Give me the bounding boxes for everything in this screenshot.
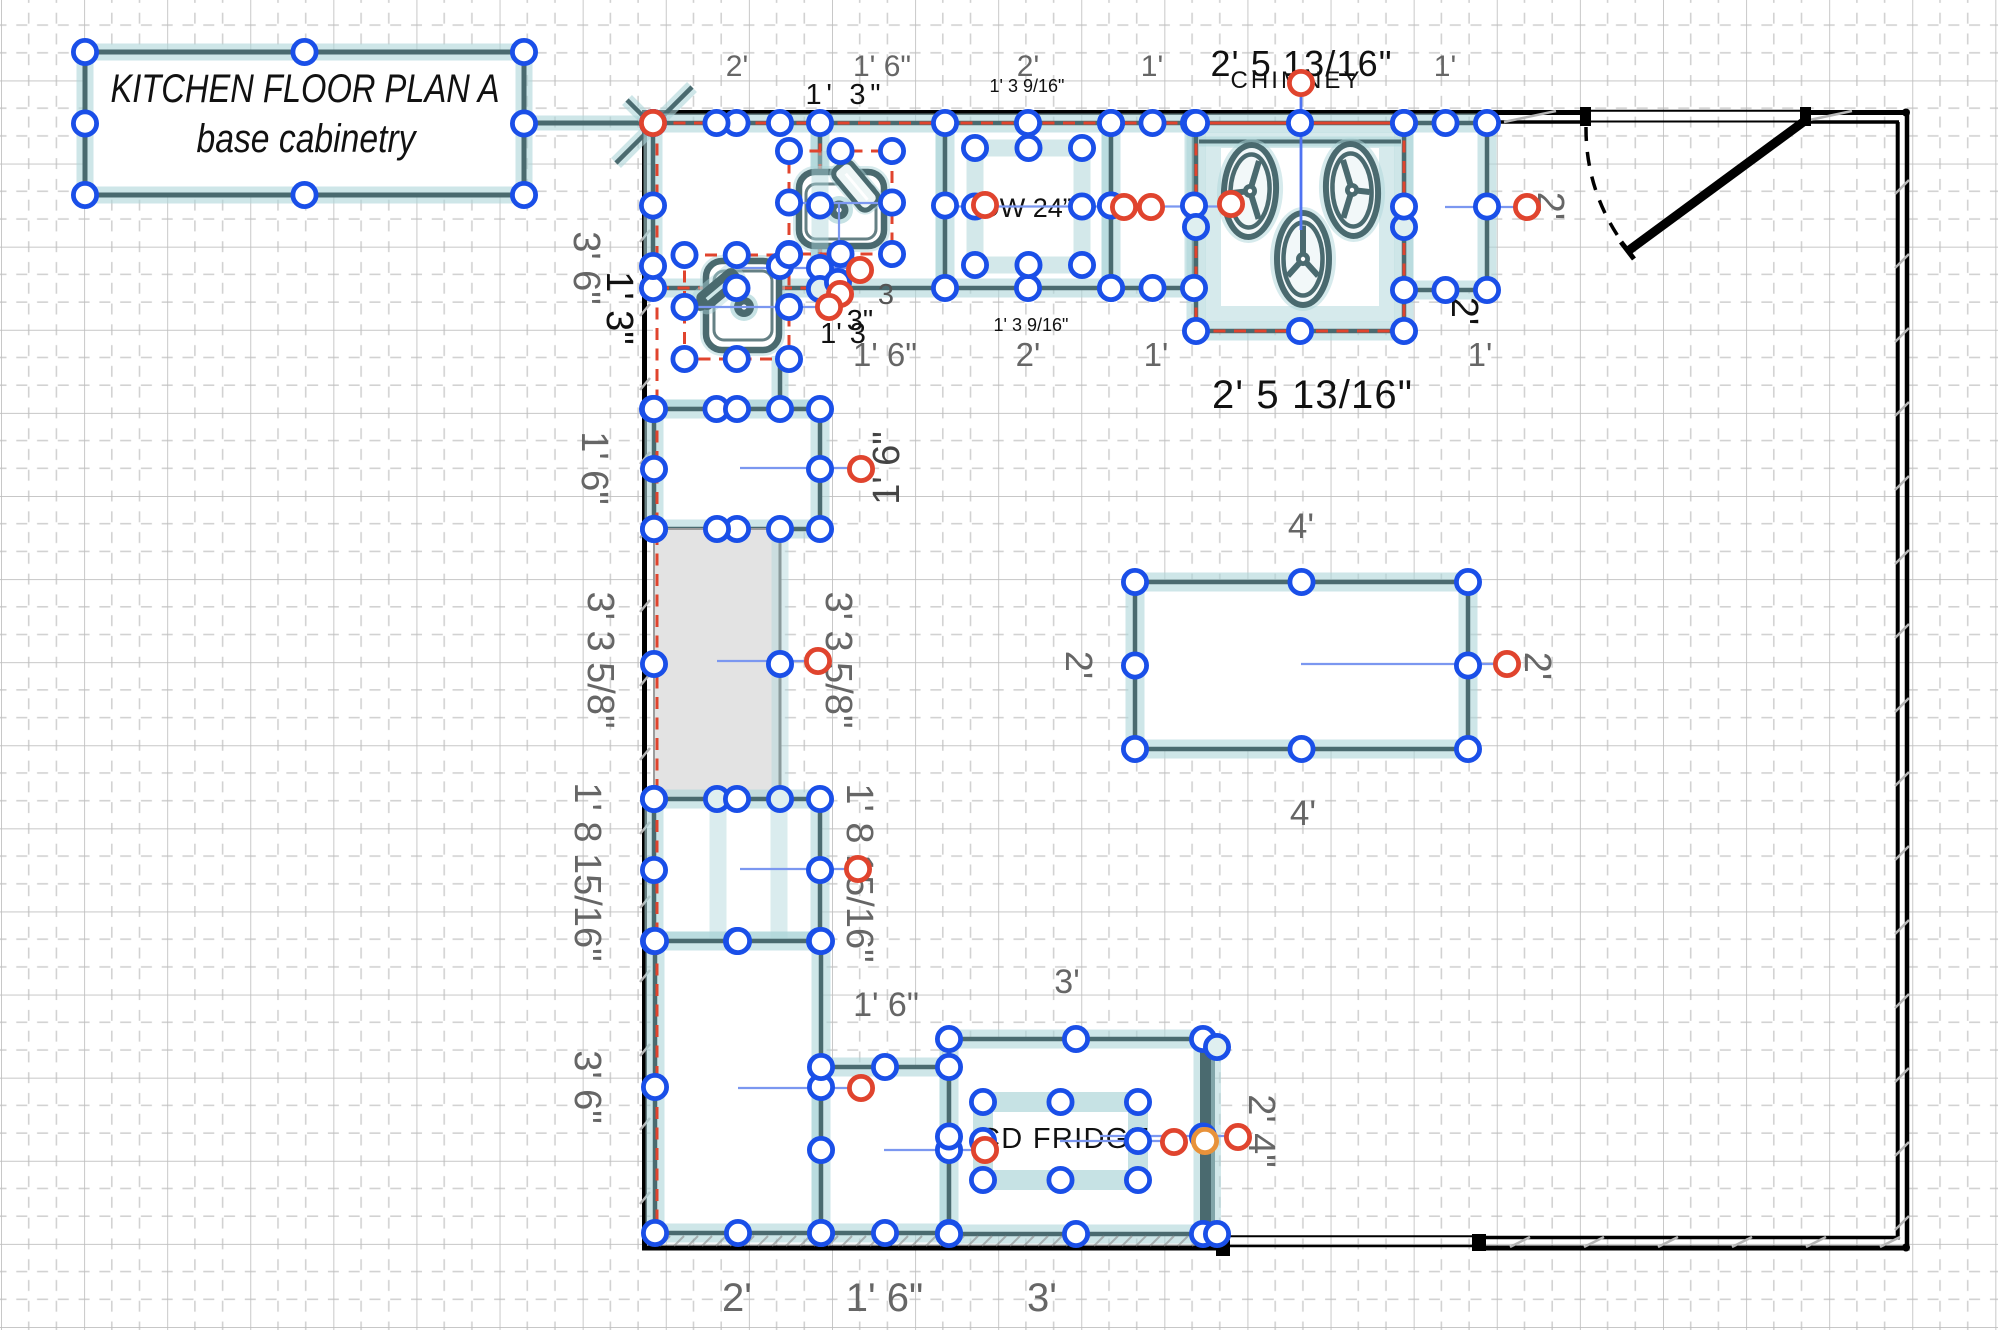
svg-text:1' 6": 1' 6" [853, 986, 919, 1024]
svg-text:1': 1' [1434, 50, 1456, 83]
svg-text:3': 3' [1027, 1276, 1057, 1320]
svg-text:base cabinetry: base cabinetry [197, 117, 419, 161]
svg-text:3': 3' [1054, 963, 1079, 1001]
svg-text:3' 3 5/8": 3' 3 5/8" [579, 592, 621, 729]
svg-text:2': 2' [1016, 336, 1041, 373]
svg-text:1' 6": 1' 6" [846, 1276, 923, 1320]
svg-text:CD FRIDGE: CD FRIDGE [979, 1123, 1149, 1155]
svg-text:1' 3": 1' 3" [806, 79, 881, 111]
svg-text:3: 3 [878, 279, 894, 311]
svg-text:1' 3 9/16": 1' 3 9/16" [990, 76, 1065, 96]
svg-text:2': 2' [726, 50, 748, 83]
svg-text:KITCHEN FLOOR PLAN A: KITCHEN FLOOR PLAN A [111, 67, 500, 111]
svg-text:1' 8 15/16": 1' 8 15/16" [566, 782, 608, 961]
svg-text:1': 1' [1144, 336, 1169, 373]
svg-text:1': 1' [1468, 336, 1493, 373]
svg-text:2' 5 13/16": 2' 5 13/16" [1212, 373, 1412, 417]
svg-text:4': 4' [1288, 507, 1314, 546]
svg-text:4': 4' [1290, 794, 1316, 833]
svg-text:2': 2' [1516, 652, 1558, 680]
svg-text:1' 3: 1' 3 [820, 318, 866, 350]
svg-text:3' 6": 3' 6" [566, 1050, 608, 1124]
svg-text:2': 2' [1057, 651, 1099, 679]
svg-text:1' 3 9/16": 1' 3 9/16" [994, 315, 1069, 335]
svg-text:1' 3": 1' 3" [598, 271, 640, 345]
svg-text:1' 6": 1' 6" [573, 431, 615, 505]
svg-text:2': 2' [722, 1276, 752, 1320]
svg-text:1': 1' [1141, 50, 1163, 83]
